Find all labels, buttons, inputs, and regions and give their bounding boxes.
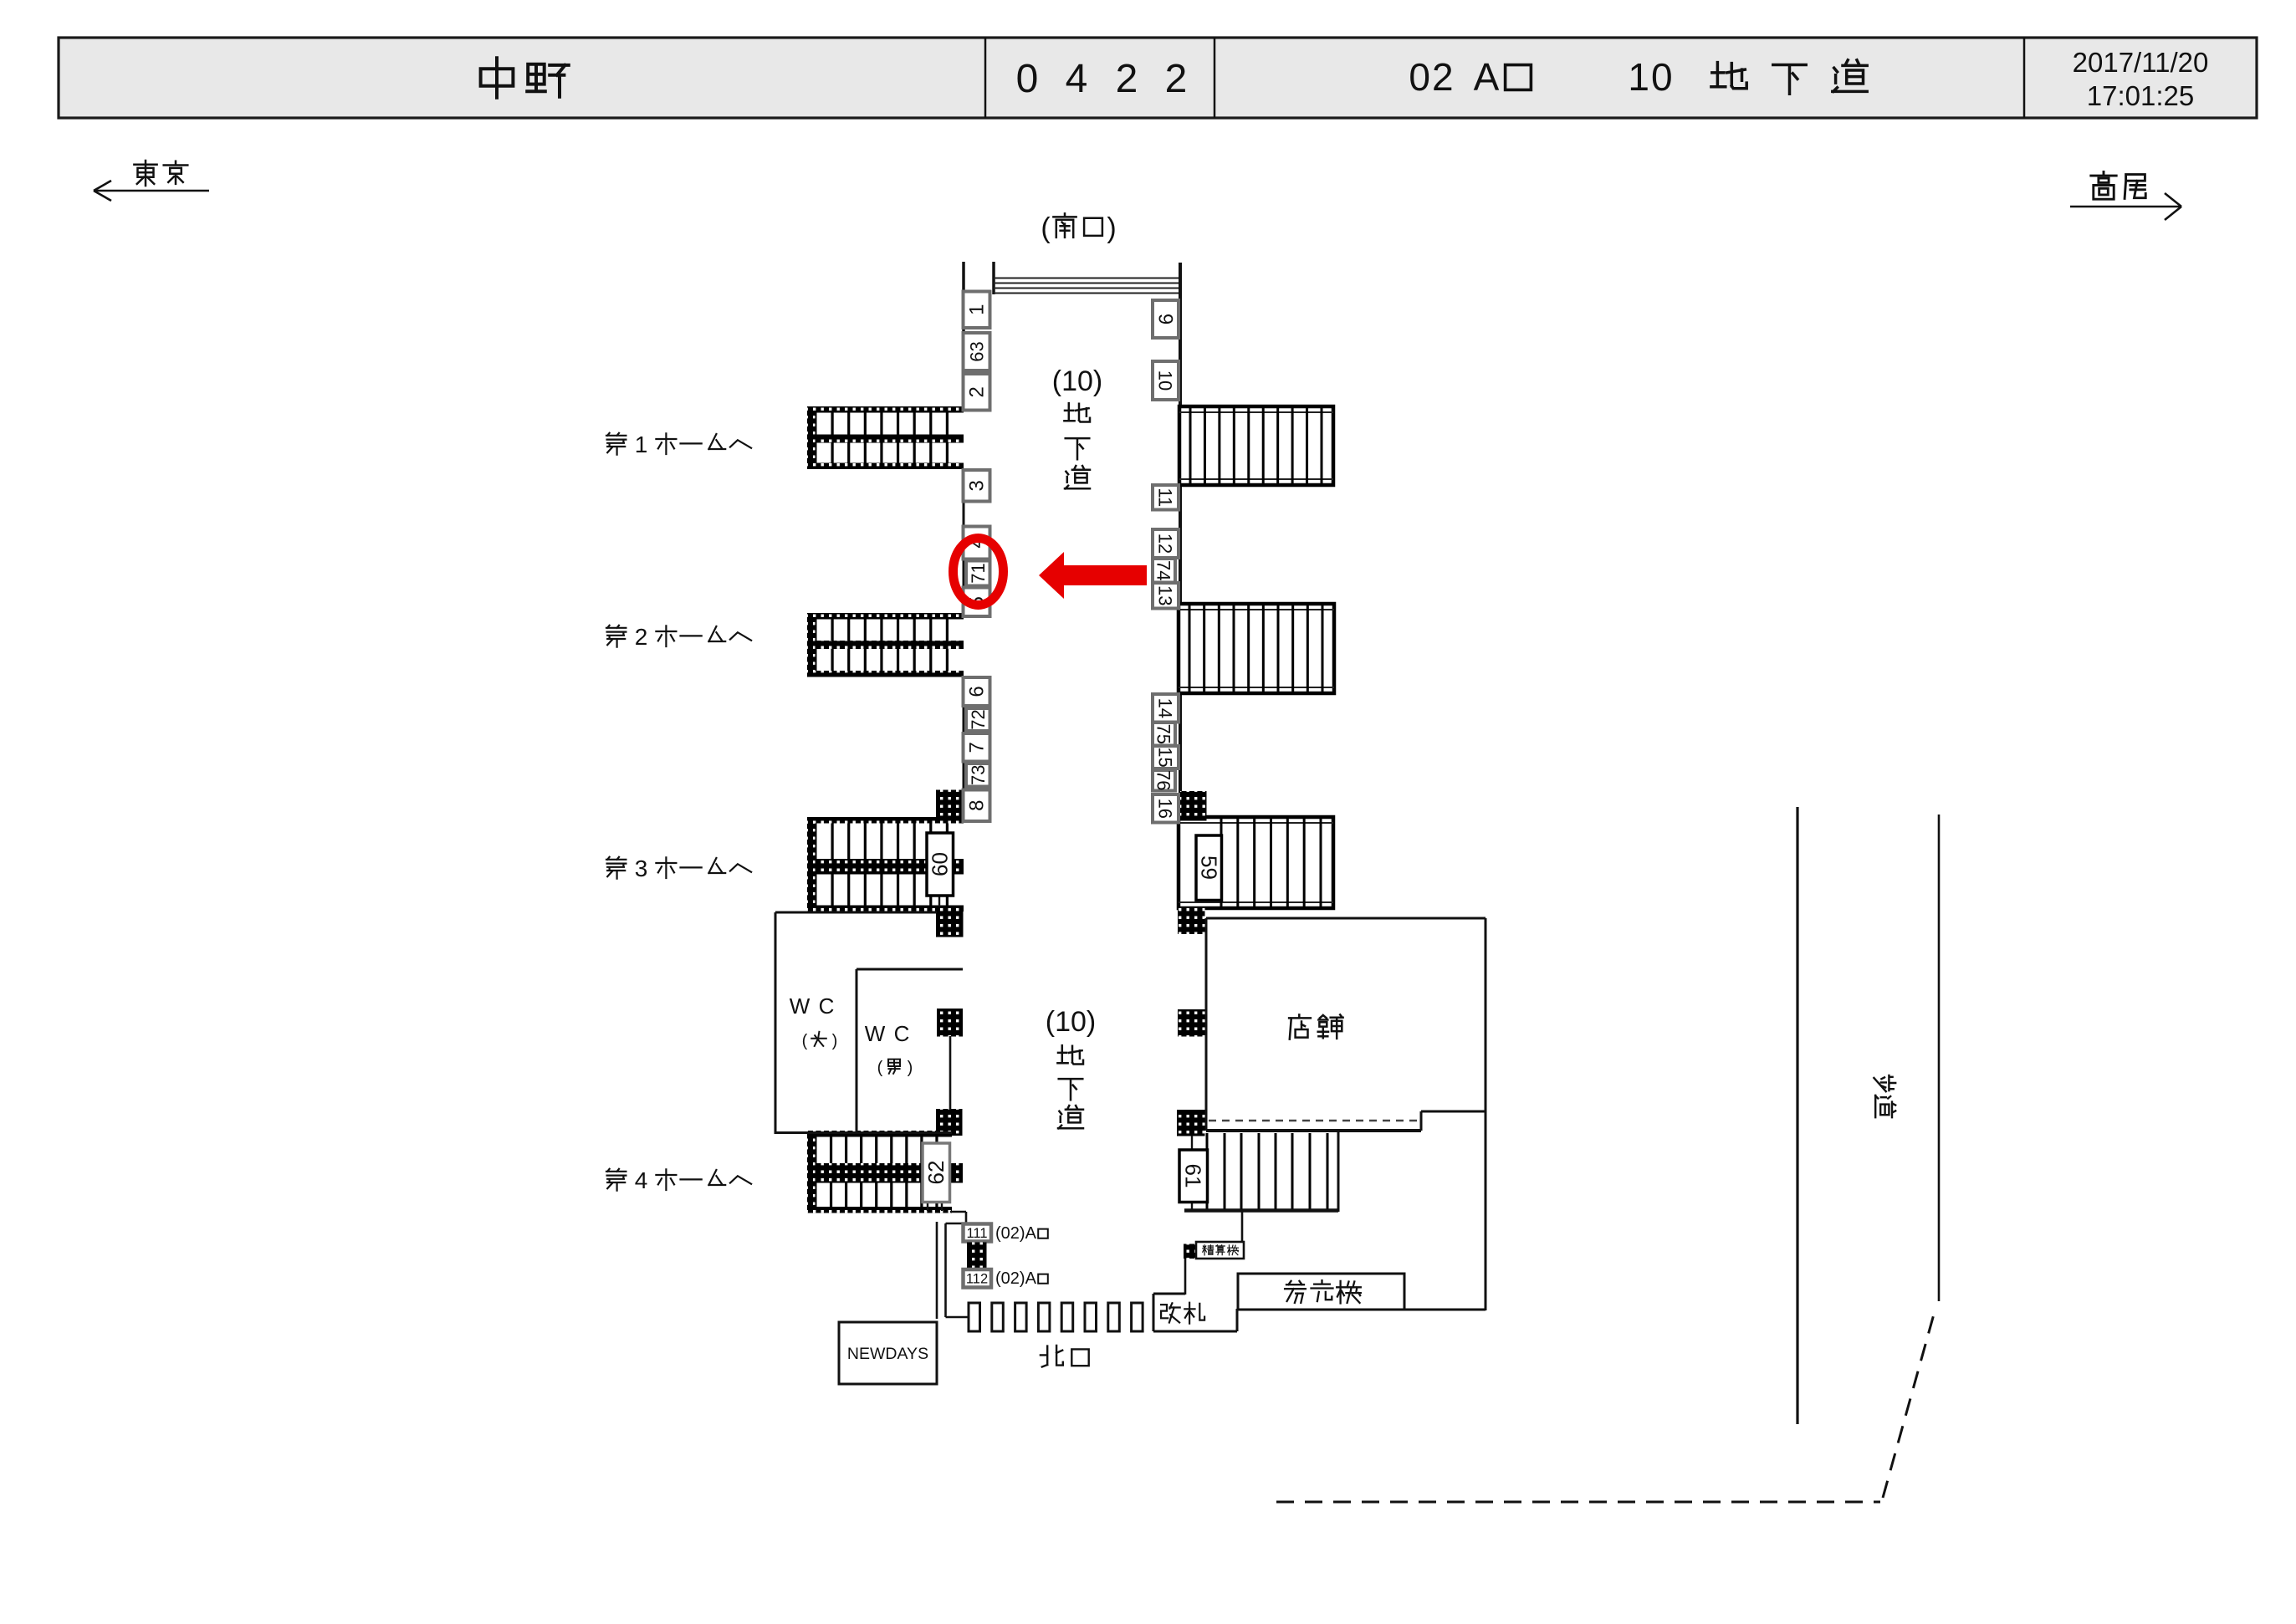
- svg-text:C: C: [894, 1021, 910, 1046]
- svg-text:(10): (10): [1052, 365, 1102, 397]
- svg-text:1: 1: [966, 304, 989, 315]
- svg-text:74: 74: [1153, 560, 1174, 580]
- svg-text:71: 71: [968, 563, 989, 583]
- svg-text:63: 63: [967, 341, 988, 361]
- svg-text:(: (: [1041, 212, 1051, 244]
- svg-text:): ): [1107, 212, 1116, 244]
- svg-text:10: 10: [1628, 55, 1674, 99]
- svg-text:76: 76: [1153, 770, 1174, 790]
- svg-text:4: 4: [1066, 57, 1088, 101]
- svg-text:A: A: [1474, 55, 1500, 99]
- svg-text:W: W: [790, 993, 811, 1019]
- svg-text:(: (: [877, 1059, 883, 1077]
- svg-text:C: C: [819, 993, 835, 1019]
- svg-text:17:01:25: 17:01:25: [2087, 80, 2194, 111]
- svg-text:112: 112: [966, 1272, 988, 1287]
- svg-text:111: 111: [966, 1226, 987, 1241]
- svg-text:14: 14: [1155, 698, 1176, 718]
- svg-text:12: 12: [1155, 534, 1176, 554]
- svg-text:10: 10: [1155, 370, 1176, 391]
- svg-text:NEWDAYS: NEWDAYS: [847, 1345, 928, 1363]
- svg-text:W: W: [865, 1021, 886, 1046]
- svg-text:59: 59: [1197, 855, 1222, 880]
- svg-text:11: 11: [1155, 488, 1176, 507]
- svg-text:(02)A: (02)A: [995, 1269, 1037, 1288]
- svg-text:1: 1: [635, 432, 648, 457]
- svg-text:7: 7: [966, 742, 989, 753]
- svg-text:6: 6: [966, 686, 989, 697]
- svg-text:16: 16: [1155, 799, 1176, 819]
- svg-text:13: 13: [1155, 585, 1176, 605]
- svg-text:0: 0: [1016, 57, 1039, 101]
- svg-text:3: 3: [966, 480, 989, 491]
- svg-text:(02)A: (02)A: [995, 1224, 1037, 1243]
- svg-text:72: 72: [968, 709, 989, 729]
- svg-text:9: 9: [1154, 314, 1177, 324]
- svg-text:(: (: [802, 1032, 808, 1050]
- svg-text:2: 2: [966, 386, 989, 397]
- svg-text:02: 02: [1409, 55, 1455, 99]
- svg-text:15: 15: [1155, 747, 1176, 767]
- svg-text:2: 2: [1165, 57, 1188, 101]
- svg-text:73: 73: [968, 765, 989, 785]
- svg-text:60: 60: [928, 852, 953, 876]
- svg-text:3: 3: [635, 855, 648, 881]
- svg-text:2: 2: [1116, 57, 1138, 101]
- svg-text:61: 61: [1181, 1164, 1206, 1188]
- svg-text:4: 4: [635, 1167, 648, 1193]
- svg-text:): ): [908, 1059, 913, 1077]
- svg-text:2: 2: [635, 624, 648, 650]
- svg-text:62: 62: [923, 1161, 949, 1185]
- svg-text:): ): [832, 1032, 838, 1050]
- svg-text:75: 75: [1153, 724, 1174, 744]
- svg-text:2017/11/20: 2017/11/20: [2073, 47, 2209, 78]
- svg-text:(10): (10): [1046, 1006, 1096, 1038]
- svg-text:8: 8: [966, 800, 989, 811]
